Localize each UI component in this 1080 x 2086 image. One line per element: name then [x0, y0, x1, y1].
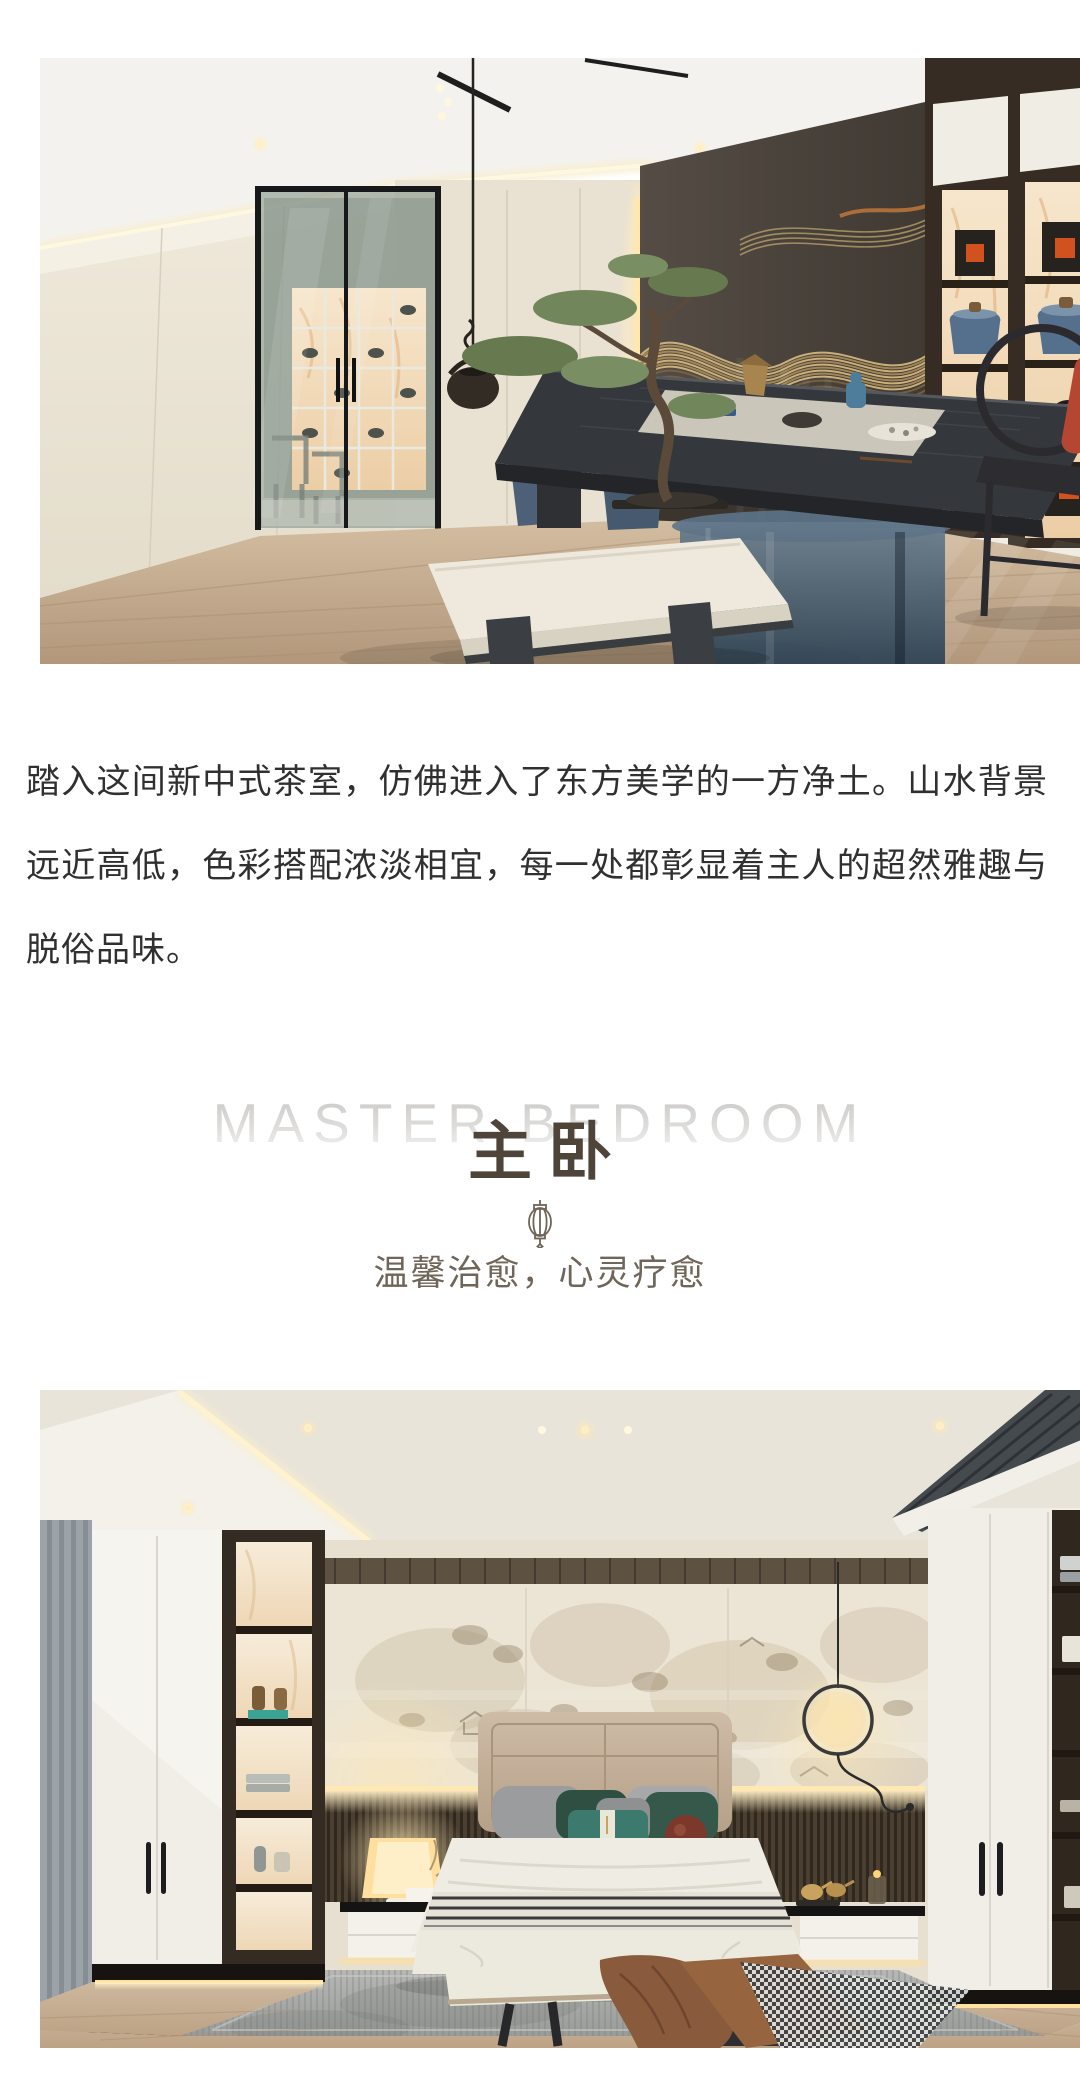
right-wardrobe — [928, 1508, 1080, 1990]
tea-room-illustration — [40, 58, 1080, 664]
section-header: MASTER BEDROOM 主卧 温馨治愈，心灵疗愈 — [0, 1092, 1080, 1296]
page-root: 踏入这间新中式茶室，仿佛进入了东方美学的一方净土。山水背景远近高低，色彩搭配浓淡… — [0, 0, 1080, 2086]
lantern-icon — [0, 1200, 1080, 1248]
section-subtitle: 温馨治愈，心灵疗愈 — [0, 1252, 1080, 1296]
curtain — [40, 1520, 92, 2032]
section-title-zh: 主卧 — [0, 1116, 1080, 1188]
left-display-column — [222, 1530, 325, 1964]
tea-room-photo — [40, 58, 1080, 664]
glass-partition — [250, 186, 441, 530]
bedroom-illustration — [40, 1390, 1080, 2048]
bedroom-photo — [40, 1390, 1080, 2048]
left-wardrobe — [92, 1530, 222, 1964]
intro-paragraph: 踏入这间新中式茶室，仿佛进入了东方美学的一方净土。山水背景远近高低，色彩搭配浓淡… — [26, 740, 1048, 992]
